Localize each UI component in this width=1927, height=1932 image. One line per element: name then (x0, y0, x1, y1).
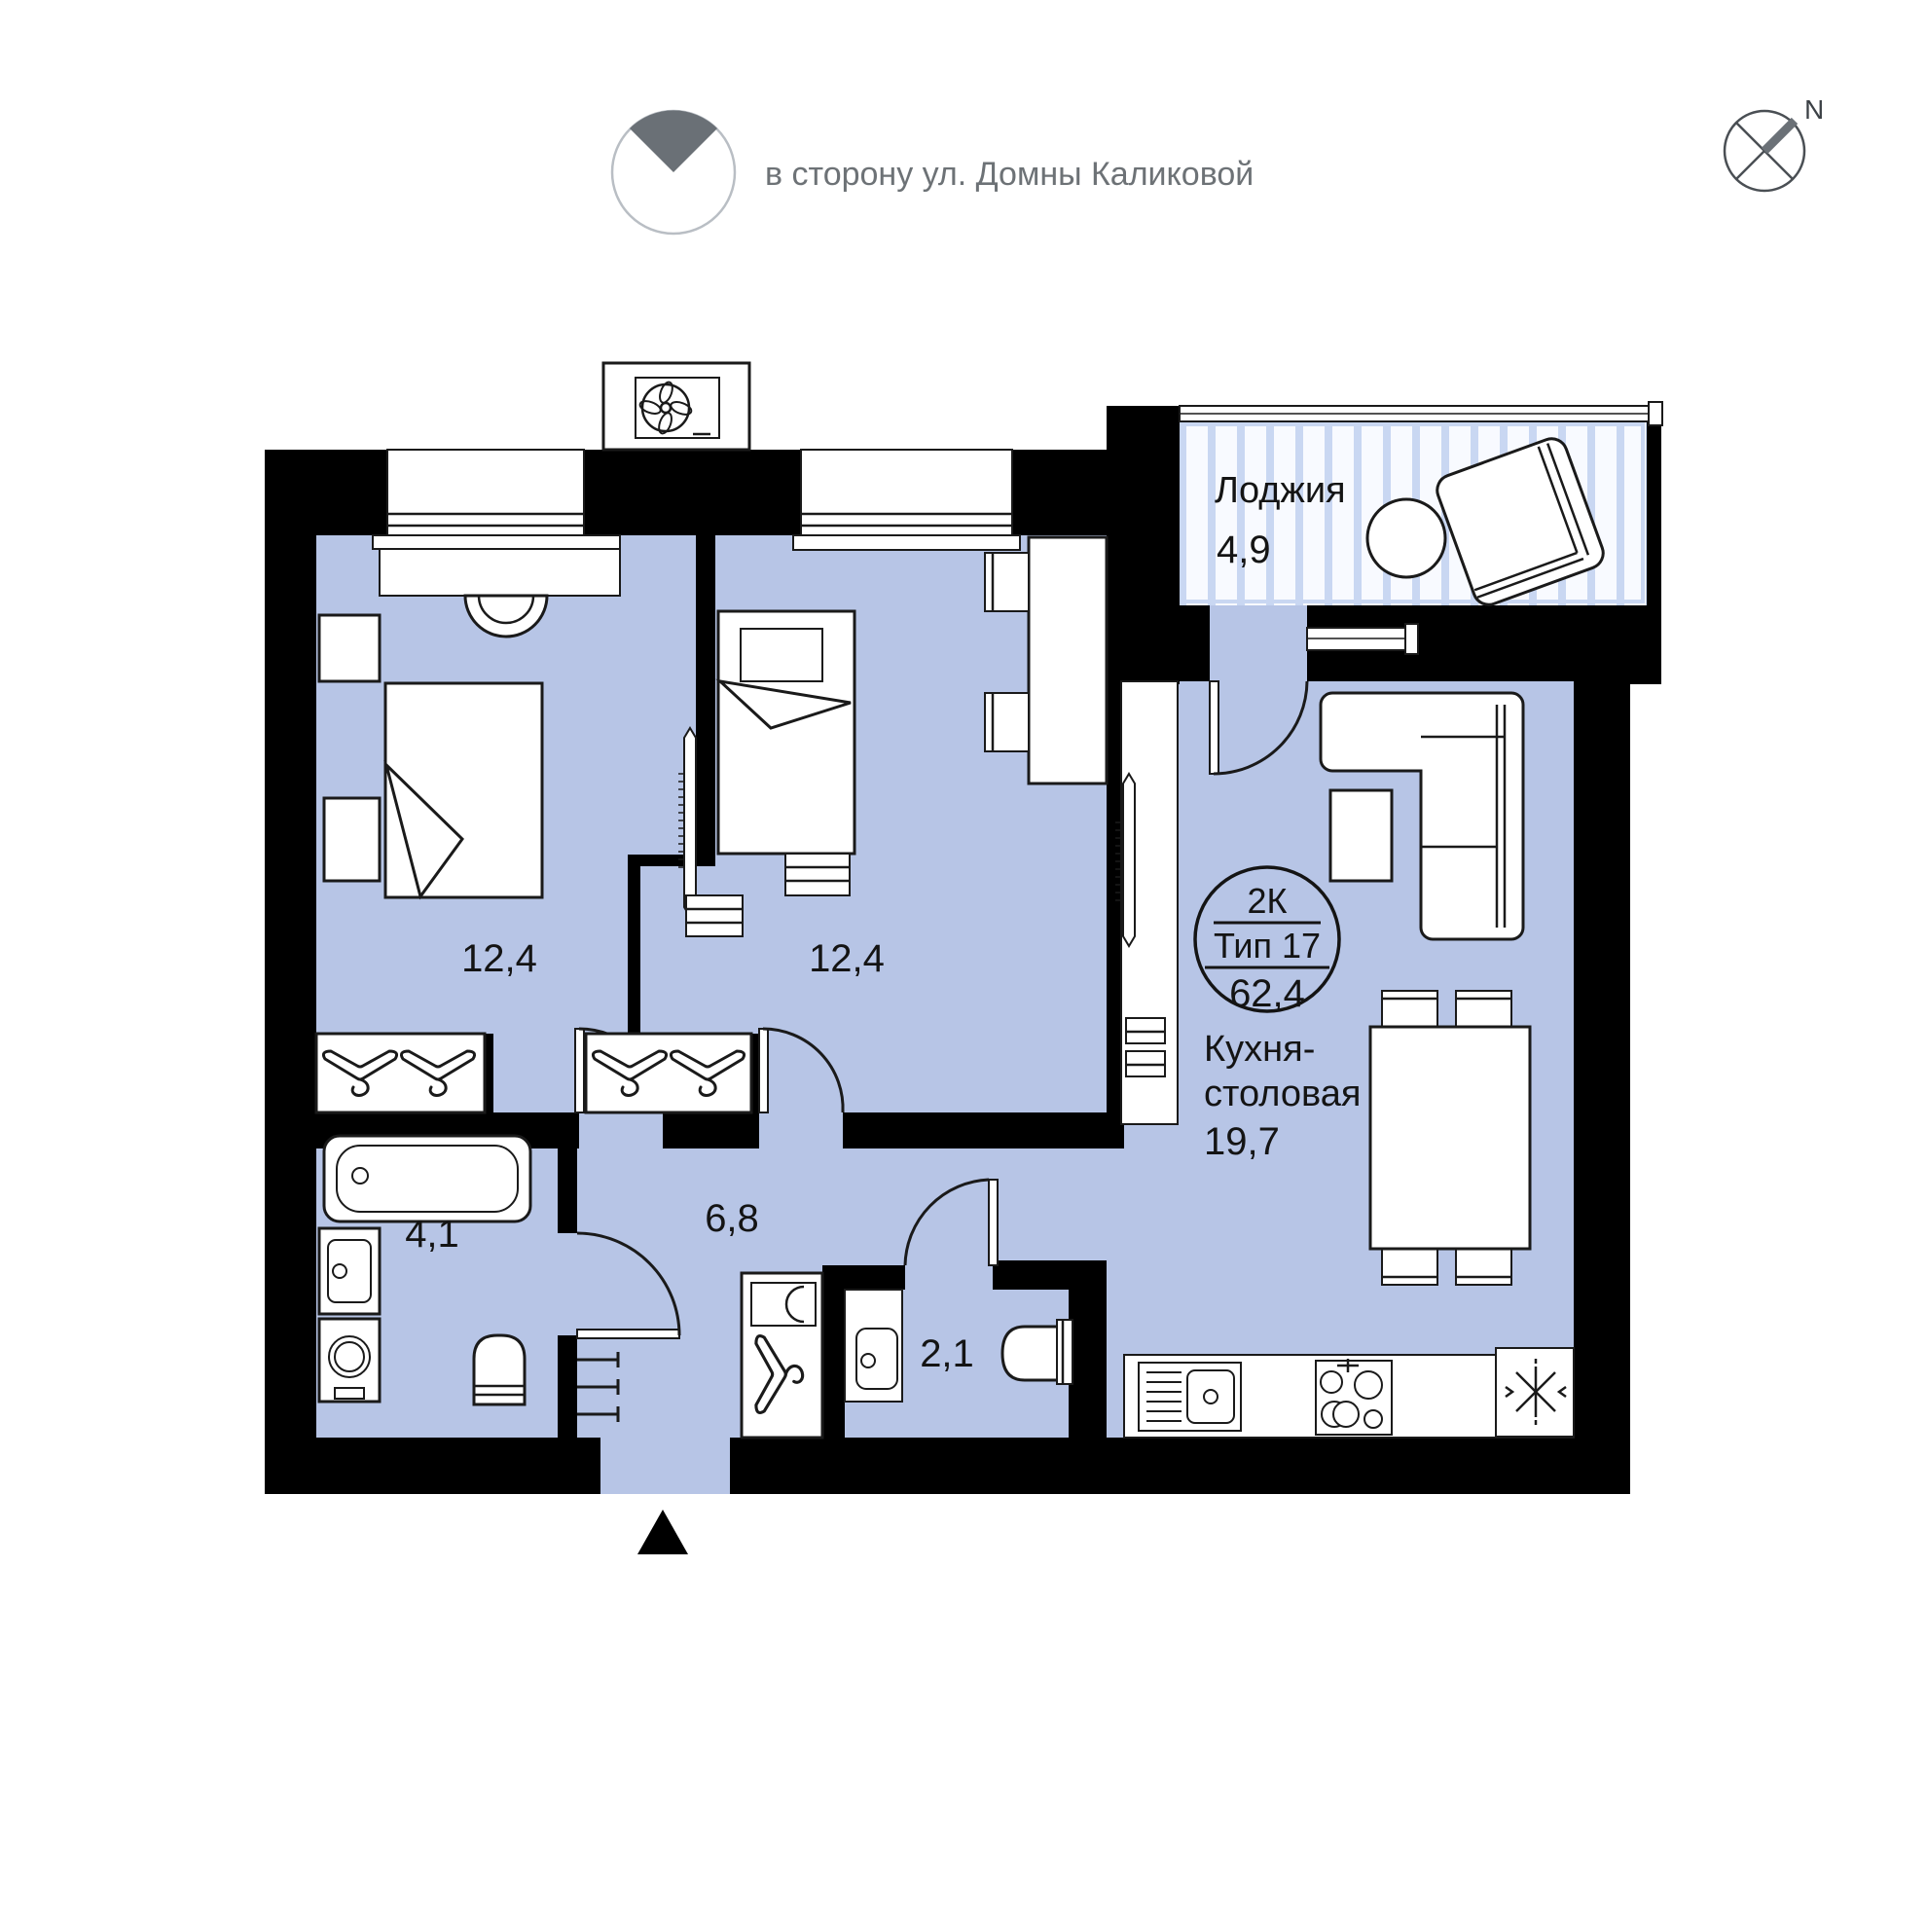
compass-north-ray-icon (1764, 121, 1795, 151)
toilet (474, 1335, 525, 1404)
entrance-opening-floor (600, 1438, 730, 1494)
wc-vanity-sink (845, 1290, 902, 1402)
nightstand (319, 615, 380, 681)
kitchen-window (1307, 624, 1418, 654)
hall-wardrobe (742, 1273, 822, 1438)
ventilation-unit (603, 363, 749, 450)
single-bed (718, 611, 854, 854)
dining-table (1370, 1027, 1530, 1249)
bathroom-area-label: 4,1 (405, 1213, 459, 1256)
kitchen-name-line2: столовая (1204, 1074, 1361, 1114)
dining-chair (1456, 991, 1511, 1030)
hallway-area-label: 6,8 (705, 1197, 759, 1240)
kitchen-name-line1: Кухня- (1204, 1029, 1315, 1070)
tv-icon (1123, 774, 1135, 946)
kitchen-area-label: 19,7 (1204, 1120, 1280, 1163)
bathtub (324, 1136, 530, 1221)
desk-chair (985, 553, 1029, 611)
mirror (751, 1283, 816, 1326)
desk-chair (985, 693, 1029, 751)
round-table (1367, 499, 1445, 577)
bedroom1-window (387, 450, 584, 535)
dining-chair (1456, 1246, 1511, 1285)
kitchen-counter (1124, 1348, 1574, 1438)
dining-chair (1382, 991, 1437, 1030)
stove (1316, 1359, 1392, 1435)
wc-area-label: 2,1 (920, 1332, 974, 1375)
coffee-table (1330, 790, 1392, 881)
loggia-area-label: 4,9 (1217, 529, 1271, 571)
compass: N (1725, 94, 1824, 191)
dining-chair (1382, 1246, 1437, 1285)
dresser (324, 798, 380, 881)
desk (1029, 537, 1107, 784)
bedroom2-area-label: 12,4 (809, 937, 885, 980)
balcony-door-opening-floor (1210, 605, 1307, 681)
floor-plan-page: в сторону ул. Домны Каликовой N (0, 0, 1927, 1927)
compass-north-label: N (1804, 94, 1824, 125)
street-direction-indicator: в сторону ул. Домны Каликовой (612, 110, 1254, 234)
kitchen-sink (1139, 1363, 1241, 1431)
closet (316, 1034, 485, 1112)
closet (586, 1034, 751, 1112)
pillow (741, 629, 822, 681)
loggia-name-label: Лоджия (1215, 470, 1346, 511)
fridge (1496, 1348, 1574, 1437)
wc-toilet (1002, 1320, 1073, 1384)
bathroom-sink (319, 1228, 380, 1314)
unit-type-badge: 2К Тип 17 62,4 (1195, 867, 1339, 1015)
badge-rooms-label: 2К (1248, 881, 1288, 921)
bedroom1-area-label: 12,4 (461, 937, 537, 980)
desk (373, 535, 620, 596)
loggia-glazing (1180, 402, 1662, 425)
double-bed (385, 683, 542, 897)
badge-area-label: 62,4 (1229, 972, 1305, 1015)
floor-plan-canvas: в сторону ул. Домны Каликовой N (0, 0, 1927, 1927)
entrance-marker-icon (637, 1510, 688, 1554)
dining-set (1370, 991, 1530, 1285)
bedroom2-window (793, 450, 1020, 550)
badge-type-label: Тип 17 (1214, 926, 1321, 966)
tv-console (1115, 681, 1178, 1124)
street-direction-label: в сторону ул. Домны Каликовой (765, 156, 1254, 193)
washing-machine (319, 1319, 380, 1402)
